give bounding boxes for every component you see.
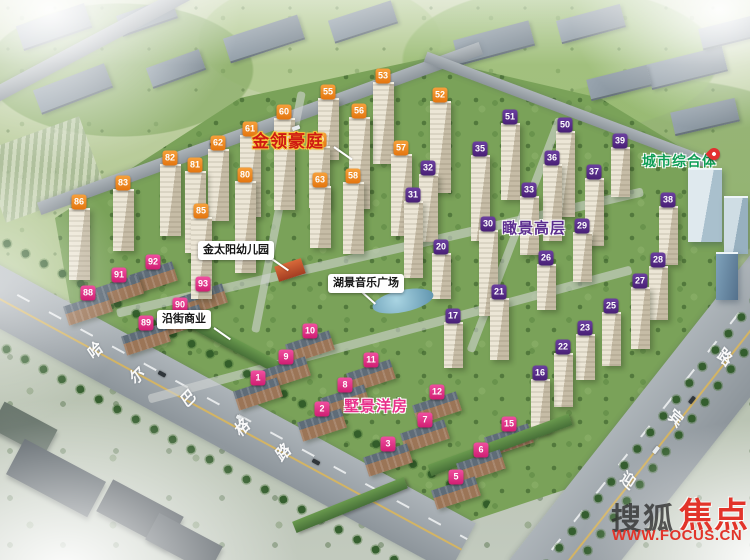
building-marker-31[interactable]: 31	[406, 188, 421, 203]
site-plan: 哈尔巴格路迎宾路 5355525660615962578281805863838…	[0, 0, 750, 560]
building-marker-52[interactable]: 52	[433, 88, 448, 103]
building-marker-81[interactable]: 81	[188, 158, 203, 173]
building-marker-62[interactable]: 62	[211, 136, 226, 151]
building-marker-21[interactable]: 21	[492, 285, 507, 300]
building-marker-93[interactable]: 93	[196, 277, 211, 292]
building-marker-1[interactable]: 1	[251, 371, 266, 386]
villas-label: 墅景洋房	[344, 395, 408, 416]
building-marker-8[interactable]: 8	[338, 378, 353, 393]
building-marker-7[interactable]: 7	[418, 413, 433, 428]
building-marker-80[interactable]: 80	[238, 168, 253, 183]
building-marker-56[interactable]: 56	[352, 104, 367, 119]
building-marker-15[interactable]: 15	[502, 417, 517, 432]
building-marker-89[interactable]: 89	[139, 316, 154, 331]
building-marker-83[interactable]: 83	[116, 176, 131, 191]
street-commerce-label: 沿街商业	[157, 310, 211, 329]
building-marker-22[interactable]: 22	[556, 340, 571, 355]
highrise-label: 瞰景高层	[502, 217, 566, 238]
building-marker-23[interactable]: 23	[578, 321, 593, 336]
building-marker-55[interactable]: 55	[321, 85, 336, 100]
building-marker-82[interactable]: 82	[163, 151, 178, 166]
building-marker-50[interactable]: 50	[558, 118, 573, 133]
building-marker-29[interactable]: 29	[575, 219, 590, 234]
building-marker-85[interactable]: 85	[194, 204, 209, 219]
project-name-label: 金领豪庭	[252, 127, 324, 152]
building-marker-2[interactable]: 2	[315, 402, 330, 417]
building-marker-32[interactable]: 32	[421, 161, 436, 176]
building-marker-86[interactable]: 86	[72, 195, 87, 210]
building-marker-37[interactable]: 37	[587, 165, 602, 180]
building-marker-17[interactable]: 17	[446, 309, 461, 324]
building-marker-26[interactable]: 26	[539, 251, 554, 266]
building-marker-88[interactable]: 88	[81, 286, 96, 301]
building-marker-60[interactable]: 60	[277, 105, 292, 120]
building-marker-20[interactable]: 20	[434, 240, 449, 255]
watermark-url: WWW.FOCUS.CN	[612, 527, 742, 544]
building-marker-12[interactable]: 12	[430, 385, 445, 400]
building-marker-27[interactable]: 27	[633, 274, 648, 289]
building-marker-25[interactable]: 25	[604, 299, 619, 314]
building-marker-35[interactable]: 35	[473, 142, 488, 157]
building-marker-38[interactable]: 38	[661, 193, 676, 208]
building-marker-10[interactable]: 10	[303, 324, 318, 339]
building-marker-36[interactable]: 36	[545, 151, 560, 166]
building-marker-11[interactable]: 11	[364, 353, 379, 368]
building-marker-6[interactable]: 6	[474, 443, 489, 458]
building-marker-9[interactable]: 9	[279, 350, 294, 365]
music-plaza-label: 湖景音乐广场	[328, 274, 404, 293]
building-marker-51[interactable]: 51	[503, 110, 518, 125]
building-marker-39[interactable]: 39	[613, 134, 628, 149]
building-marker-33[interactable]: 33	[522, 183, 537, 198]
building-marker-3[interactable]: 3	[381, 437, 396, 452]
building-marker-53[interactable]: 53	[376, 69, 391, 84]
building-marker-92[interactable]: 92	[146, 255, 161, 270]
building-marker-5[interactable]: 5	[449, 470, 464, 485]
building-marker-28[interactable]: 28	[651, 253, 666, 268]
building-marker-16[interactable]: 16	[533, 366, 548, 381]
building-marker-63[interactable]: 63	[313, 173, 328, 188]
building-marker-30[interactable]: 30	[481, 217, 496, 232]
building-marker-91[interactable]: 91	[112, 268, 127, 283]
building-marker-58[interactable]: 58	[346, 169, 361, 184]
building-marker-57[interactable]: 57	[394, 141, 409, 156]
kindergarten-label: 金太阳幼儿园	[198, 241, 274, 260]
